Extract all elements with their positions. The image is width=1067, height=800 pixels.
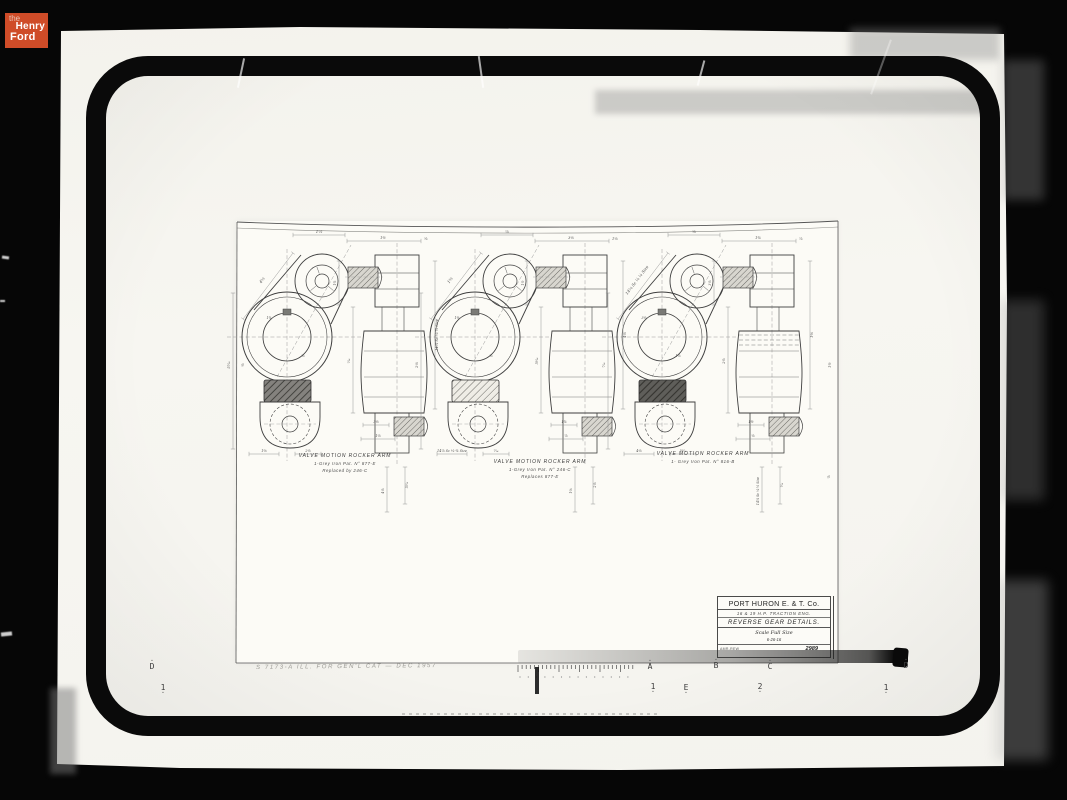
svg-text:1⅝: 1⅝ <box>612 237 618 241</box>
svg-text:1½: 1½ <box>380 235 386 240</box>
svg-text:4⅛: 4⅛ <box>257 276 266 285</box>
part-pattern: 1- Grey Iron Pat. N° 816-B <box>657 459 750 464</box>
film-speck <box>1 631 12 636</box>
svg-text:1¾: 1¾ <box>755 235 761 240</box>
henry-ford-logo: the Henry Ford <box>5 13 48 48</box>
registration-mark: D <box>146 659 158 670</box>
svg-text:1⅝: 1⅝ <box>316 229 323 234</box>
svg-text:⅞: ⅞ <box>505 229 509 234</box>
engine-model: 16 & 19 H.P. TRACTION ENG. <box>718 610 830 618</box>
part-name: VALVE MOTION ROCKER ARM <box>299 453 392 459</box>
svg-text:14⅞ Sc ⅛ ¼ Size: 14⅞ Sc ⅛ ¼ Size <box>624 264 650 296</box>
part-note: Replaces 877-E <box>494 474 587 479</box>
svg-text:⁷⁄₁₆: ⁷⁄₁₆ <box>780 482 784 487</box>
svg-text:1⅜: 1⅜ <box>569 488 573 494</box>
svg-text:3⅛: 3⅛ <box>641 316 647 320</box>
svg-text:3⅛: 3⅛ <box>373 420 379 424</box>
svg-text:1⅜: 1⅜ <box>810 332 814 338</box>
svg-text:⅞: ⅞ <box>301 354 305 358</box>
assembly-2: ⅝14⅞ Sc ⅛ ¼ Size⁷⁄₁₆3⅛1⅝4⅛5¹⁄₁₆1¾⅞1⅜2⅛1½… <box>602 229 814 512</box>
svg-text:⅝: ⅝ <box>489 354 493 358</box>
drawing-date: 6-26-16 <box>718 636 830 645</box>
film-speck <box>0 300 5 302</box>
svg-text:1½: 1½ <box>748 419 753 424</box>
svg-text:1⅜: 1⅜ <box>446 276 454 284</box>
svg-text:2⅛: 2⅛ <box>722 358 726 365</box>
registration-mark: 2 <box>754 683 766 694</box>
svg-text:⅞: ⅞ <box>564 434 568 438</box>
registration-mark: D <box>900 658 912 669</box>
svg-text:1⅝: 1⅝ <box>375 434 381 438</box>
part-label-246C: VALVE MOTION ROCKER ARM 1-Grey Iron Pat.… <box>494 459 587 479</box>
svg-text:1⅜: 1⅜ <box>261 449 267 453</box>
part-pattern: 1-Grey Iron Pat. N° 246-C <box>494 467 587 472</box>
registration-mark: B <box>710 658 722 669</box>
svg-text:1½: 1½ <box>454 315 459 320</box>
svg-text:4⅛: 4⅛ <box>635 449 642 453</box>
registration-mark: 1 <box>157 684 169 695</box>
svg-text:1½: 1½ <box>520 280 525 285</box>
svg-text:1½: 1½ <box>827 362 832 368</box>
svg-text:1¾: 1¾ <box>266 315 271 320</box>
svg-text:2⅛: 2⅛ <box>593 482 597 489</box>
photo-of-engineering-drawing: 1⅝4⅛5¹⁄₁₆1¾⅞1⅜2⅛1½⅝14⅞ Sc ⅛ ¼ Size⁷⁄₁₆3⅛… <box>0 0 1067 800</box>
svg-text:⅝: ⅝ <box>692 229 696 234</box>
part-note: Replaced by 246-C <box>299 468 392 473</box>
svg-text:⁷⁄₁₆: ⁷⁄₁₆ <box>494 449 499 453</box>
company-name: PORT HURON E. & T. Co. <box>718 597 830 610</box>
ink-mark <box>535 667 539 694</box>
svg-text:5¹⁄₁₆: 5¹⁄₁₆ <box>535 357 539 364</box>
svg-text:⅞: ⅞ <box>827 475 831 479</box>
svg-text:1⅝: 1⅝ <box>675 354 681 358</box>
svg-text:14⅞ Sc ⅛ ¼ Size: 14⅞ Sc ⅛ ¼ Size <box>437 448 467 453</box>
svg-text:⅝: ⅝ <box>424 237 428 241</box>
registration-mark: 1 <box>647 683 659 694</box>
svg-text:⅞: ⅞ <box>799 237 803 241</box>
registration-mark: C <box>764 659 776 670</box>
part-name: VALVE MOTION ROCKER ARM <box>657 451 750 457</box>
svg-text:14⅞ Sc ⅛ ¼ Size: 14⅞ Sc ⅛ ¼ Size <box>755 477 760 505</box>
svg-text:3⅛: 3⅛ <box>568 236 574 240</box>
scale-note: Scale Full Size <box>718 628 830 636</box>
svg-text:⁷⁄₁₆: ⁷⁄₁₆ <box>347 358 351 363</box>
part-name: VALVE MOTION ROCKER ARM <box>494 459 587 465</box>
svg-text:1¾: 1¾ <box>332 280 337 285</box>
part-pattern: 1-Grey Iron Pat. N° 877-E <box>299 461 392 466</box>
svg-text:4⅛: 4⅛ <box>623 332 627 339</box>
svg-text:⅝: ⅝ <box>751 434 755 438</box>
faint-dashed-line <box>402 713 660 715</box>
svg-text:5¹⁄₁₆: 5¹⁄₁₆ <box>405 481 409 488</box>
svg-text:⅝: ⅝ <box>241 363 245 367</box>
sheet-title: REVERSE GEAR DETAILS. <box>718 618 830 628</box>
registration-mark: 1 <box>880 684 892 695</box>
svg-text:14⅞ Sc ⅛ ¼ Size: 14⅞ Sc ⅛ ¼ Size <box>434 319 439 351</box>
svg-text:3⅛: 3⅛ <box>708 280 712 286</box>
title-block: PORT HURON E. & T. Co. 16 & 19 H.P. TRAC… <box>717 596 831 658</box>
film-streak <box>1002 60 1044 200</box>
svg-text:1¾: 1¾ <box>561 419 566 424</box>
registration-mark: A <box>644 659 656 670</box>
logo-ford: Ford <box>10 32 45 42</box>
registration-mark: E <box>680 684 692 695</box>
svg-text:2⅛: 2⅛ <box>415 362 419 369</box>
svg-text:5¹⁄₁₆: 5¹⁄₁₆ <box>227 361 231 369</box>
part-label-877E: VALVE MOTION ROCKER ARM 1-Grey Iron Pat.… <box>299 453 392 473</box>
svg-text:⁷⁄₁₆: ⁷⁄₁₆ <box>602 362 606 367</box>
part-label-816B: VALVE MOTION ROCKER ARM 1- Grey Iron Pat… <box>657 451 750 466</box>
film-speck <box>2 256 9 260</box>
svg-text:4⅛: 4⅛ <box>381 488 385 495</box>
